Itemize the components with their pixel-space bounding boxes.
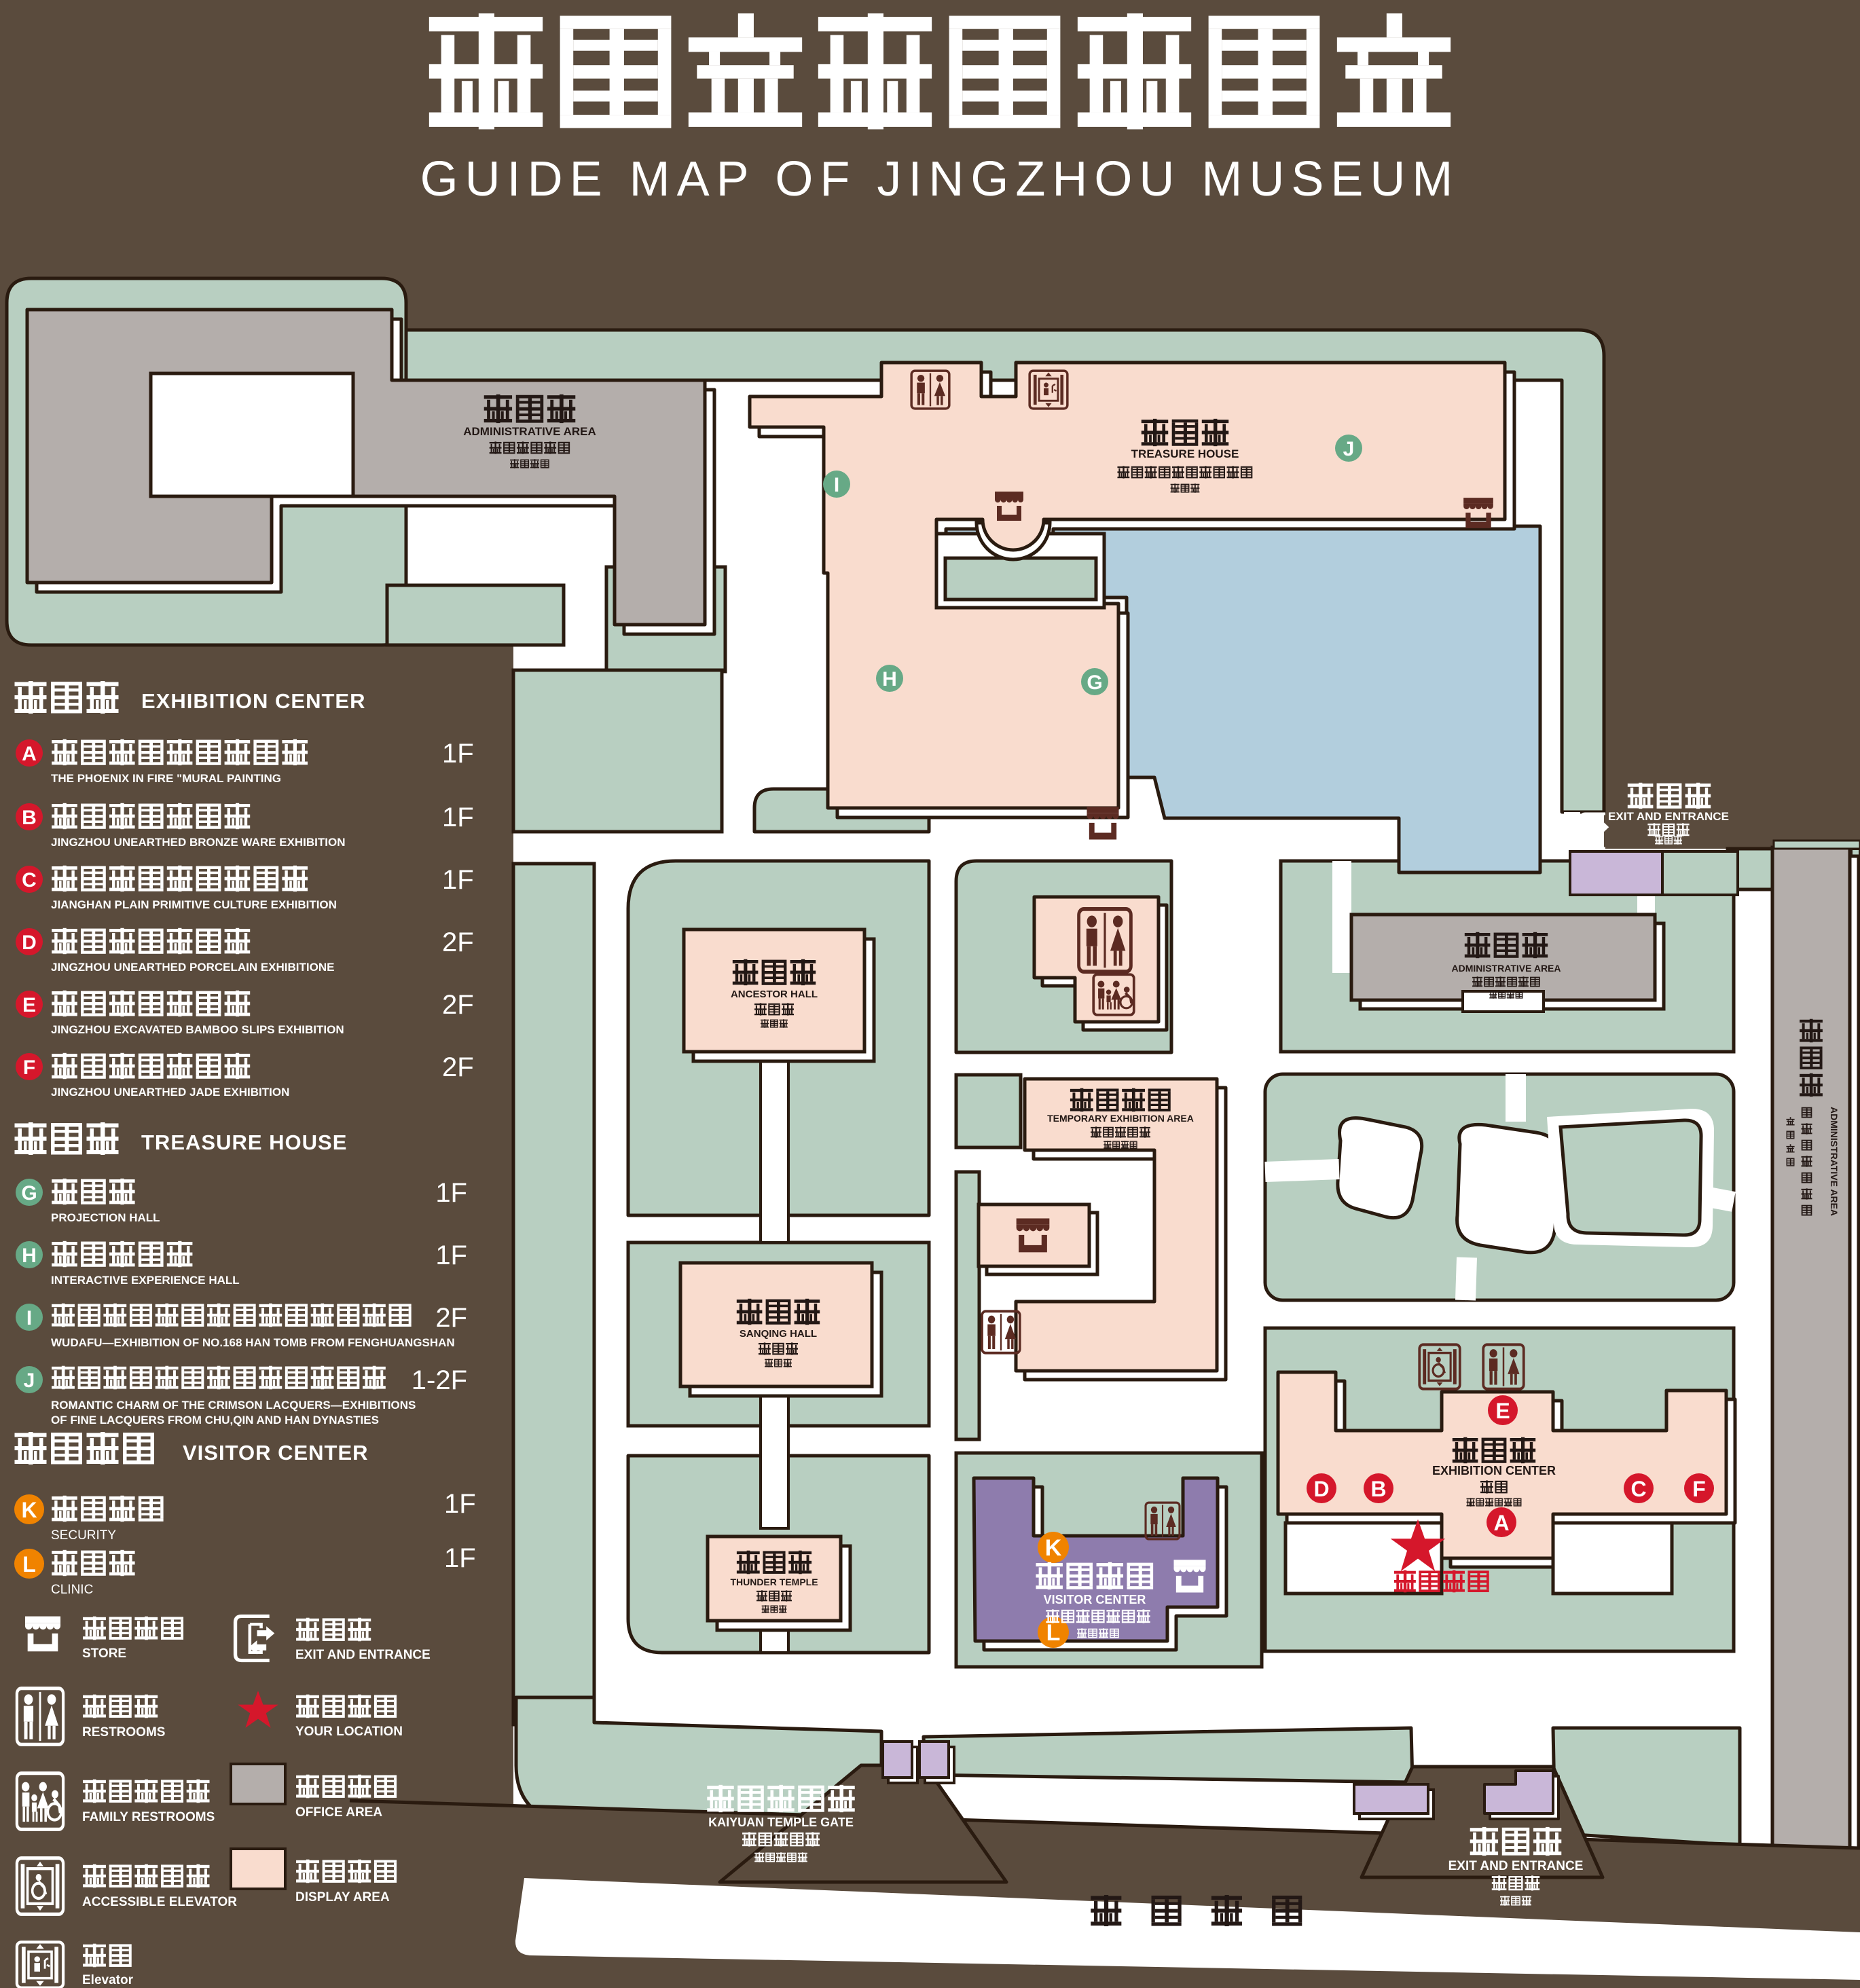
svg-text:G: G — [1087, 671, 1102, 694]
svg-text:J: J — [1343, 438, 1355, 460]
svg-text:G: G — [21, 1182, 37, 1204]
svg-text:DISPLAY AREA: DISPLAY AREA — [295, 1890, 390, 1904]
svg-text:CLINIC: CLINIC — [51, 1583, 93, 1597]
svg-text:E: E — [22, 994, 36, 1016]
svg-text:THUNDER TEMPLE: THUNDER TEMPLE — [730, 1577, 818, 1587]
svg-text:TREASURE HOUSE: TREASURE HOUSE — [1131, 447, 1239, 460]
svg-text:K: K — [21, 1498, 37, 1522]
svg-text:1F: 1F — [444, 1543, 476, 1573]
svg-text:H: H — [882, 668, 897, 691]
svg-text:D: D — [1313, 1477, 1329, 1501]
svg-text:VISITOR CENTER: VISITOR CENTER — [1044, 1593, 1146, 1606]
svg-text:H: H — [22, 1245, 37, 1267]
svg-text:EXIT AND ENTRANCE: EXIT AND ENTRANCE — [295, 1648, 431, 1662]
svg-text:I: I — [834, 474, 839, 496]
svg-text:L: L — [22, 1552, 36, 1577]
svg-text:JINGZHOU UNEARTHED BRONZE WARE: JINGZHOU UNEARTHED BRONZE WARE EXHIBITIO… — [51, 836, 346, 849]
svg-text:2F: 2F — [442, 1052, 474, 1082]
svg-text:I: I — [26, 1307, 32, 1329]
svg-text:RESTROOMS: RESTROOMS — [82, 1725, 165, 1739]
svg-text:YOUR LOCATION: YOUR LOCATION — [295, 1725, 403, 1739]
svg-text:1F: 1F — [444, 1489, 476, 1519]
svg-text:ADMINISTRATIVE AREA: ADMINISTRATIVE AREA — [1452, 963, 1561, 974]
svg-text:D: D — [22, 932, 37, 954]
svg-text:FAMILY RESTROOMS: FAMILY RESTROOMS — [82, 1810, 215, 1824]
svg-text:2F: 2F — [435, 1303, 467, 1333]
svg-text:JINGZHOU UNEARTHED JADE EXHIBI: JINGZHOU UNEARTHED JADE EXHIBITION — [51, 1086, 289, 1099]
svg-text:EXIT AND ENTRANCE: EXIT AND ENTRANCE — [1608, 810, 1729, 823]
svg-text:ADMINISTRATIVE AREA: ADMINISTRATIVE AREA — [1829, 1107, 1840, 1216]
svg-text:1F: 1F — [442, 803, 474, 832]
svg-text:INTERACTIVE EXPERIENCE HALL: INTERACTIVE EXPERIENCE HALL — [51, 1274, 240, 1287]
svg-text:SECURITY: SECURITY — [51, 1528, 116, 1543]
svg-text:JINGZHOU EXCAVATED BAMBOO SLIP: JINGZHOU EXCAVATED BAMBOO SLIPS EXHIBITI… — [51, 1023, 344, 1036]
svg-text:OF FINE LACQUERS FROM CHU,QIN: OF FINE LACQUERS FROM CHU,QIN AND HAN DY… — [51, 1414, 379, 1426]
svg-text:K: K — [1045, 1535, 1062, 1561]
svg-text:EXHIBITION CENTER: EXHIBITION CENTER — [1432, 1464, 1556, 1477]
svg-text:1F: 1F — [442, 739, 474, 769]
svg-text:GUIDE MAP OF JINGZHOU MUSEUM: GUIDE MAP OF JINGZHOU MUSEUM — [420, 152, 1460, 206]
svg-text:1-2F: 1-2F — [412, 1365, 467, 1395]
svg-text:VISITOR CENTER: VISITOR CENTER — [183, 1441, 369, 1465]
svg-text:EXIT AND ENTRANCE: EXIT AND ENTRANCE — [1448, 1859, 1584, 1873]
svg-text:1F: 1F — [435, 1240, 467, 1270]
svg-text:2F: 2F — [442, 927, 474, 957]
svg-text:A: A — [22, 743, 37, 765]
svg-text:C: C — [22, 869, 37, 891]
svg-text:2F: 2F — [442, 990, 474, 1020]
svg-text:OFFICE AREA: OFFICE AREA — [295, 1805, 382, 1820]
svg-text:1F: 1F — [442, 865, 474, 895]
svg-text:PROJECTION HALL: PROJECTION HALL — [51, 1211, 160, 1224]
svg-text:STORE: STORE — [82, 1646, 126, 1661]
svg-text:KAIYUAN TEMPLE GATE: KAIYUAN TEMPLE GATE — [708, 1816, 854, 1829]
svg-text:ANCESTOR HALL: ANCESTOR HALL — [731, 989, 818, 1000]
svg-text:J: J — [24, 1369, 35, 1392]
svg-text:F: F — [1692, 1477, 1706, 1501]
svg-text:EXHIBITION CENTER: EXHIBITION CENTER — [141, 689, 365, 713]
svg-text:E: E — [1495, 1399, 1510, 1423]
svg-text:THE PHOENIX IN FIRE "MURAL PAI: THE PHOENIX IN FIRE "MURAL PAINTING — [51, 772, 281, 785]
svg-text:ADMINISTRATIVE AREA: ADMINISTRATIVE AREA — [463, 425, 596, 438]
svg-text:C: C — [1630, 1477, 1646, 1501]
svg-text:F: F — [23, 1056, 35, 1079]
svg-text:B: B — [1370, 1477, 1386, 1501]
svg-text:SANQING HALL: SANQING HALL — [740, 1328, 817, 1340]
svg-text:1F: 1F — [435, 1178, 467, 1208]
svg-text:ROMANTIC CHARM OF THE CRIMSON: ROMANTIC CHARM OF THE CRIMSON LACQUERS—E… — [51, 1399, 416, 1412]
svg-text:L: L — [1046, 1620, 1061, 1646]
svg-text:WUDAFU—EXHIBITION OF NO.168 HA: WUDAFU—EXHIBITION OF NO.168 HAN TOMB FRO… — [51, 1336, 455, 1349]
svg-text:B: B — [22, 807, 37, 829]
svg-text:Elevator: Elevator — [82, 1973, 134, 1987]
svg-text:TEMPORARY EXHIBITION AREA: TEMPORARY EXHIBITION AREA — [1047, 1113, 1194, 1124]
svg-text:JIANGHAN PLAIN PRIMITIVE CULTU: JIANGHAN PLAIN PRIMITIVE CULTURE EXHIBIT… — [51, 898, 337, 911]
svg-text:A: A — [1493, 1511, 1509, 1535]
svg-text:JINGZHOU UNEARTHED PORCELAIN E: JINGZHOU UNEARTHED PORCELAIN EXHIBITIONE — [51, 961, 334, 974]
svg-text:ACCESSIBLE ELEVATOR: ACCESSIBLE ELEVATOR — [82, 1895, 237, 1909]
svg-text:TREASURE HOUSE: TREASURE HOUSE — [141, 1130, 347, 1154]
